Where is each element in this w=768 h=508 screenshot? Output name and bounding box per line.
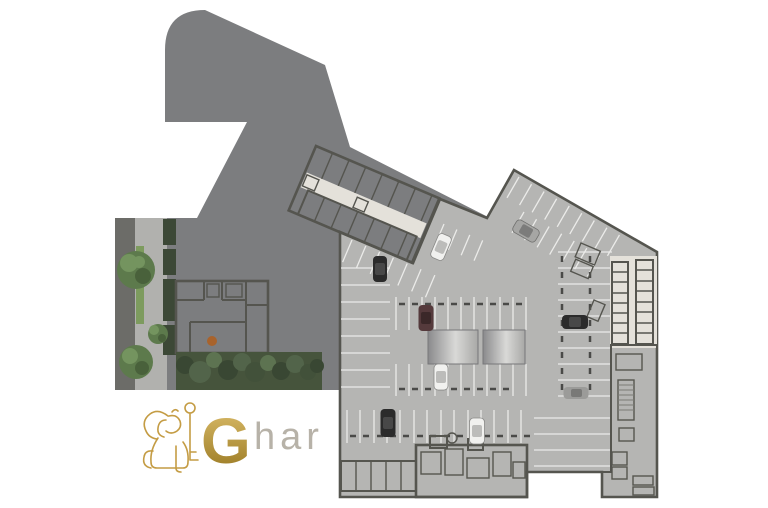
car-white [470, 418, 485, 444]
driveway-ramp [428, 330, 525, 364]
car-black [373, 256, 387, 282]
table [207, 336, 217, 346]
car-black [562, 315, 588, 329]
logo-lion-icon [144, 403, 198, 472]
planting-band [176, 352, 324, 390]
car-maroon [419, 305, 434, 331]
key-icon [190, 414, 198, 460]
car-black [381, 409, 396, 437]
tree-icon [119, 345, 153, 379]
tree-icon [148, 324, 168, 344]
floor-plan: G har [0, 0, 768, 508]
floorplan-canvas: G har [0, 0, 768, 508]
logo: G har [144, 403, 324, 477]
car-gray [564, 387, 589, 399]
tree-icon [117, 251, 155, 289]
car-white [434, 364, 448, 390]
logo-text-g: G [201, 405, 251, 477]
logo-text-har: har [254, 416, 324, 458]
